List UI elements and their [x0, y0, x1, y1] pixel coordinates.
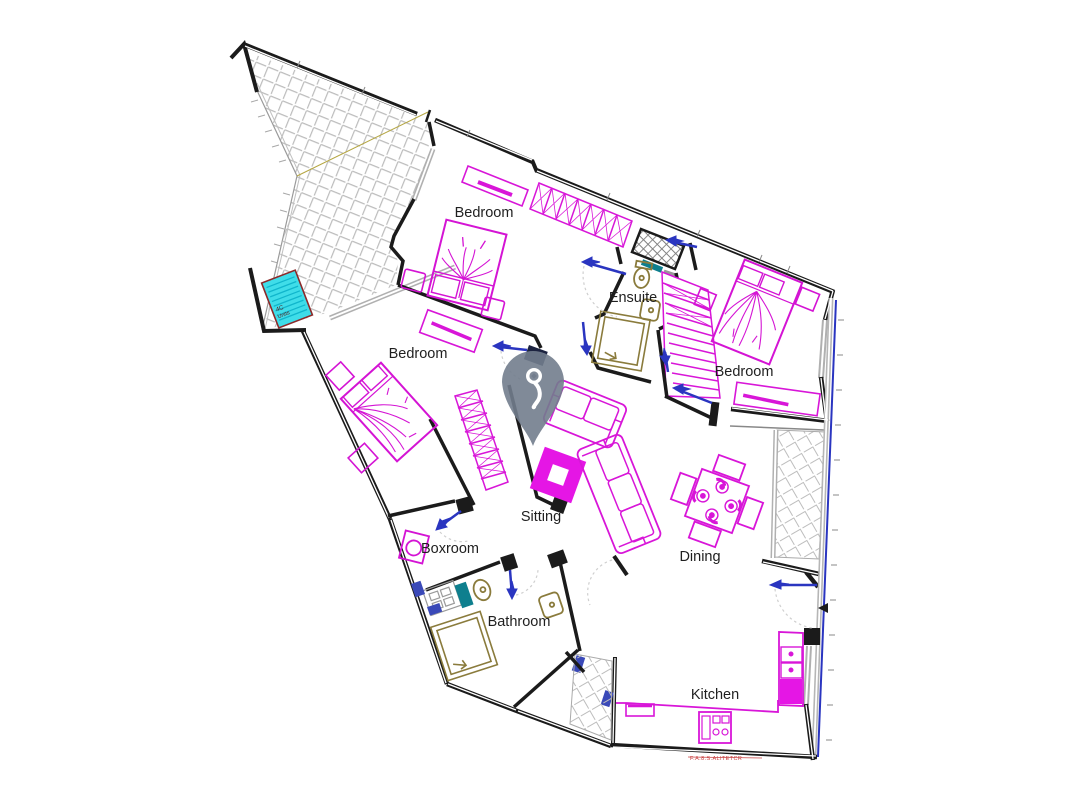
svg-text:Kitchen: Kitchen [691, 687, 739, 703]
svg-text:Boxroom: Boxroom [421, 541, 479, 557]
svg-text:Bedroom: Bedroom [715, 364, 774, 380]
svg-text:Ensuite: Ensuite [609, 290, 657, 306]
svg-text:Bedroom: Bedroom [389, 346, 448, 362]
svg-text:Dining: Dining [679, 549, 720, 565]
svg-text:Bathroom: Bathroom [488, 614, 551, 630]
svg-text:Bedroom: Bedroom [455, 205, 514, 221]
svg-text:Sitting: Sitting [521, 509, 561, 525]
